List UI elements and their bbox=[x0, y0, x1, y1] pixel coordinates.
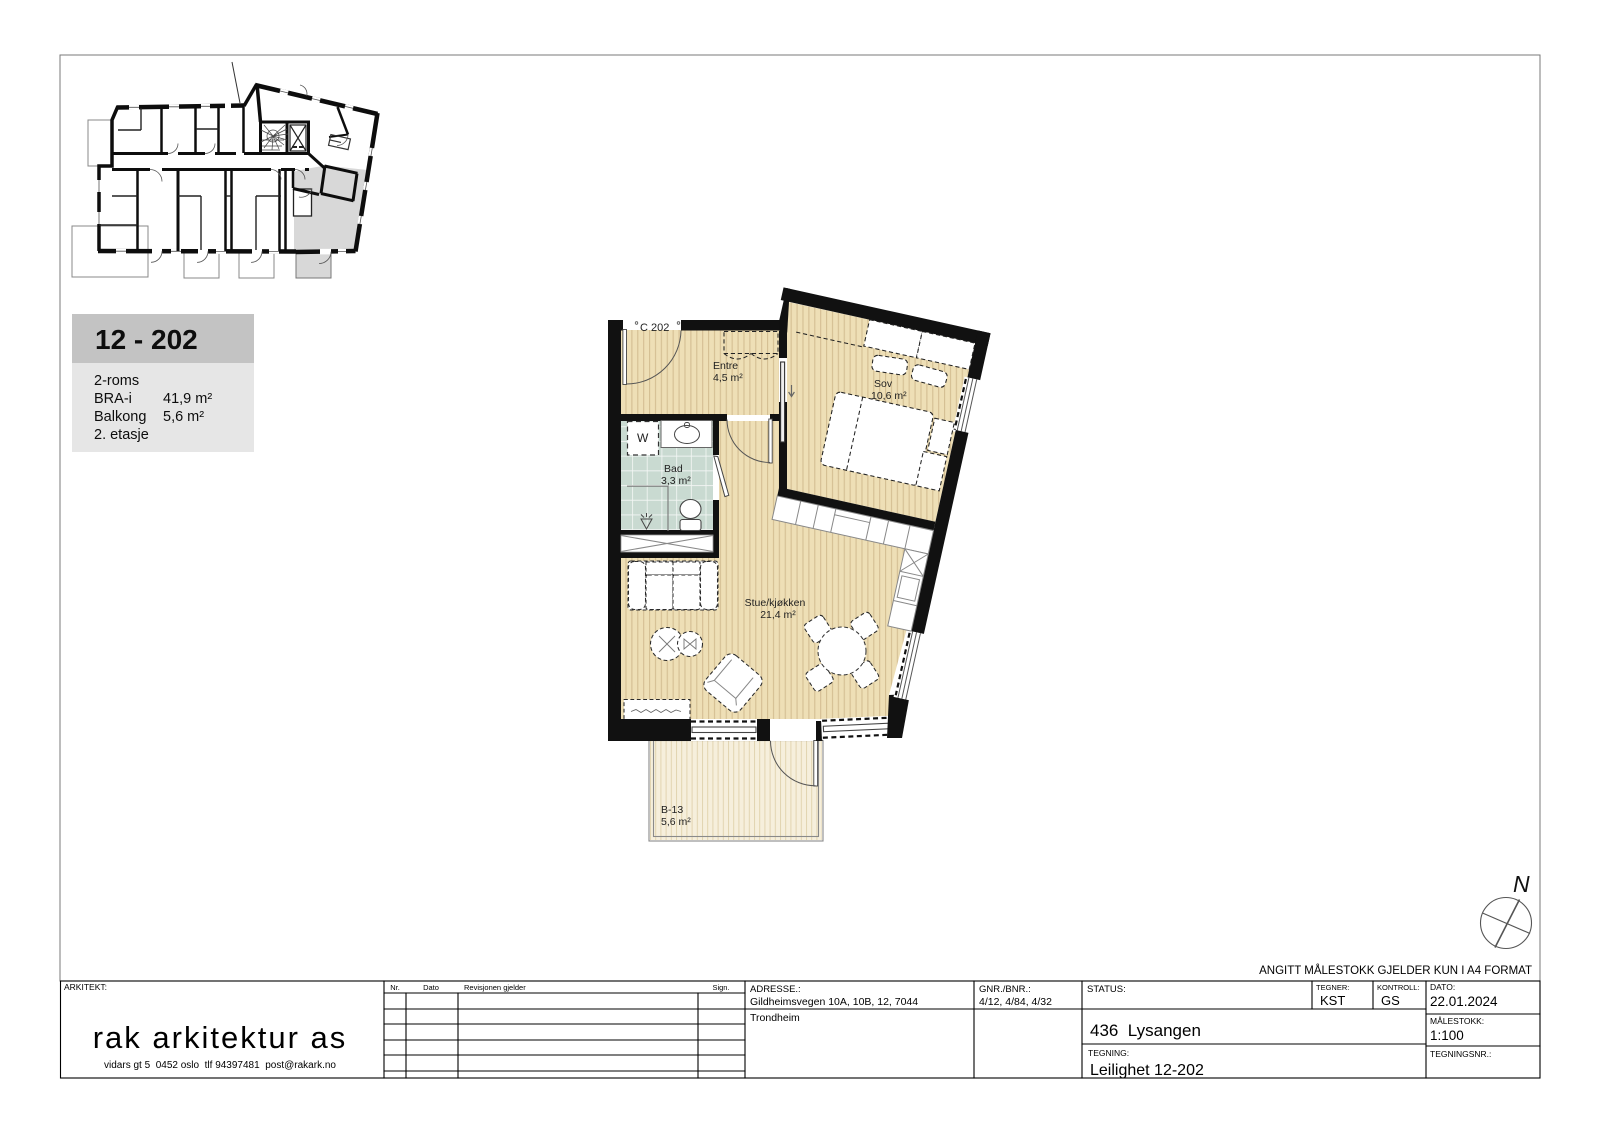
svg-text:GS: GS bbox=[1381, 993, 1400, 1008]
svg-text:N: N bbox=[1513, 871, 1530, 897]
svg-text:Dato: Dato bbox=[423, 983, 439, 992]
svg-text:C 202: C 202 bbox=[640, 322, 669, 334]
svg-text:1:100: 1:100 bbox=[1430, 1028, 1464, 1043]
svg-text:Entre: Entre bbox=[713, 360, 738, 372]
svg-text:21,4 m²: 21,4 m² bbox=[760, 609, 796, 621]
svg-text:W: W bbox=[637, 431, 649, 445]
svg-text:436 Lysangen: 436 Lysangen bbox=[1090, 1021, 1201, 1040]
svg-text:Revisjonen gjelder: Revisjonen gjelder bbox=[464, 983, 526, 992]
svg-text:DATO:: DATO: bbox=[1430, 982, 1455, 992]
svg-text:2. etasje: 2. etasje bbox=[94, 427, 149, 443]
svg-text:3,3 m²: 3,3 m² bbox=[661, 475, 691, 487]
svg-text:KONTROLL:: KONTROLL: bbox=[1377, 983, 1420, 992]
svg-text:5,6 m²: 5,6 m² bbox=[661, 816, 691, 828]
svg-text:Sov: Sov bbox=[874, 378, 893, 390]
svg-text:Trondheim: Trondheim bbox=[750, 1012, 800, 1024]
svg-text:12 - 202: 12 - 202 bbox=[95, 324, 198, 355]
svg-text:Stue/kjøkken: Stue/kjøkken bbox=[745, 597, 806, 609]
svg-text:TEGNING:: TEGNING: bbox=[1088, 1048, 1129, 1058]
svg-text:41,9 m²: 41,9 m² bbox=[163, 391, 212, 407]
svg-text:MÅLESTOKK:: MÅLESTOKK: bbox=[1430, 1016, 1484, 1026]
svg-text:Gildheimsvegen 10A, 10B, 12, 7: Gildheimsvegen 10A, 10B, 12, 7044 bbox=[750, 996, 918, 1008]
svg-text:rak arkitektur as: rak arkitektur as bbox=[93, 1020, 348, 1055]
svg-text:22.01.2024: 22.01.2024 bbox=[1430, 994, 1498, 1009]
svg-text:STATUS:: STATUS: bbox=[1087, 984, 1126, 995]
svg-text:4/12, 4/84, 4/32: 4/12, 4/84, 4/32 bbox=[979, 996, 1052, 1008]
svg-text:TEGNER:: TEGNER: bbox=[1316, 983, 1349, 992]
svg-text:ANGITT MÅLESTOKK GJELDER KUN I: ANGITT MÅLESTOKK GJELDER KUN I A4 FORMAT bbox=[1259, 964, 1532, 977]
svg-text:Balkong: Balkong bbox=[94, 409, 146, 425]
svg-text:10,6 m²: 10,6 m² bbox=[871, 390, 907, 402]
svg-text:GNR./BNR.:: GNR./BNR.: bbox=[979, 984, 1031, 995]
svg-text:2-roms: 2-roms bbox=[94, 373, 139, 389]
svg-text:Nr.: Nr. bbox=[390, 983, 400, 992]
svg-text:Sign.: Sign. bbox=[712, 983, 729, 992]
svg-text:TEGNINGSNR.:: TEGNINGSNR.: bbox=[1430, 1049, 1491, 1059]
svg-text:5,6 m²: 5,6 m² bbox=[163, 409, 204, 425]
svg-text:B-13: B-13 bbox=[661, 804, 683, 816]
svg-text:Leilighet 12-202: Leilighet 12-202 bbox=[1090, 1062, 1204, 1079]
svg-text:4,5 m²: 4,5 m² bbox=[713, 372, 743, 384]
svg-text:ARKITEKT:: ARKITEKT: bbox=[64, 982, 107, 992]
svg-text:ADRESSE.:: ADRESSE.: bbox=[750, 984, 801, 995]
svg-text:Bad: Bad bbox=[664, 463, 683, 475]
svg-text:vidars gt 5 0452 oslo tlf 94: vidars gt 5 0452 oslo tlf 94397481 post@… bbox=[104, 1060, 336, 1071]
svg-text:KST: KST bbox=[1320, 993, 1345, 1008]
svg-text:BRA-i: BRA-i bbox=[94, 391, 132, 407]
